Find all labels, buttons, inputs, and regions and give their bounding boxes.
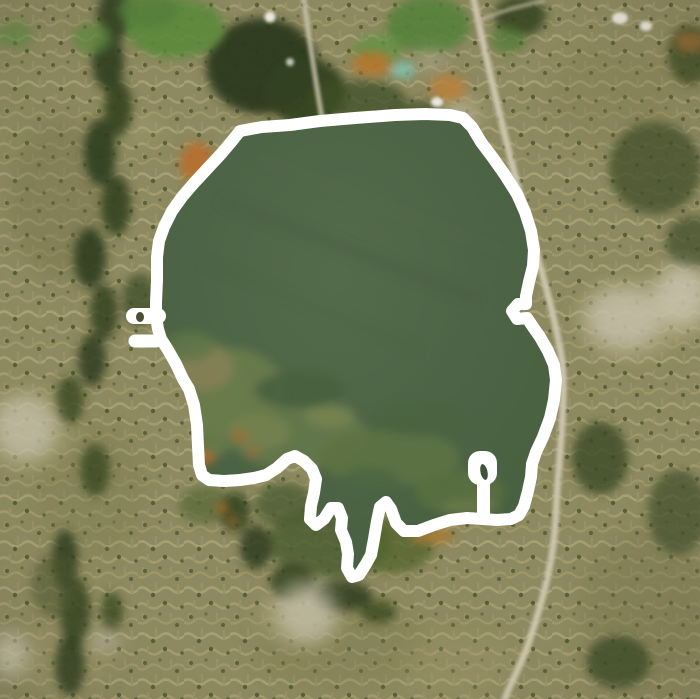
satellite-map-view [0, 0, 700, 699]
vignette-overlay [0, 0, 700, 699]
satellite-map-image [0, 0, 700, 699]
